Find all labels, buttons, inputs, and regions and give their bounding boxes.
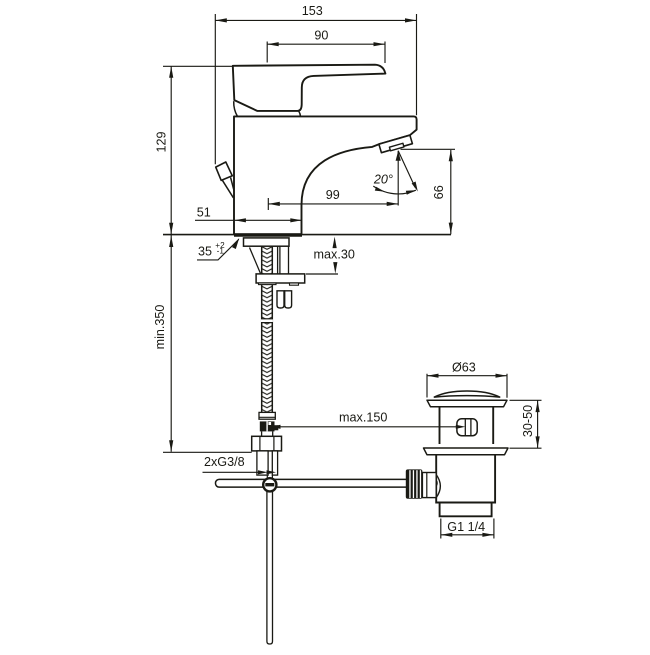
svg-text:max.150: max.150 (339, 411, 387, 425)
svg-text:20°: 20° (373, 172, 393, 186)
svg-text:30-50: 30-50 (521, 405, 535, 437)
svg-text:35: 35 (198, 245, 212, 259)
svg-text:99: 99 (326, 188, 340, 202)
svg-text:max.30: max.30 (314, 248, 355, 262)
svg-text:2xG3/8: 2xG3/8 (204, 455, 245, 469)
svg-text:G1 1/4: G1 1/4 (447, 520, 485, 534)
svg-text:153: 153 (302, 4, 323, 18)
svg-text:90: 90 (314, 28, 328, 42)
svg-text:min.350: min.350 (153, 305, 167, 350)
svg-text:66: 66 (432, 185, 446, 199)
svg-text:129: 129 (155, 131, 169, 152)
svg-text:51: 51 (197, 205, 211, 219)
svg-text:Ø63: Ø63 (452, 361, 476, 375)
svg-text:-1: -1 (217, 247, 225, 256)
